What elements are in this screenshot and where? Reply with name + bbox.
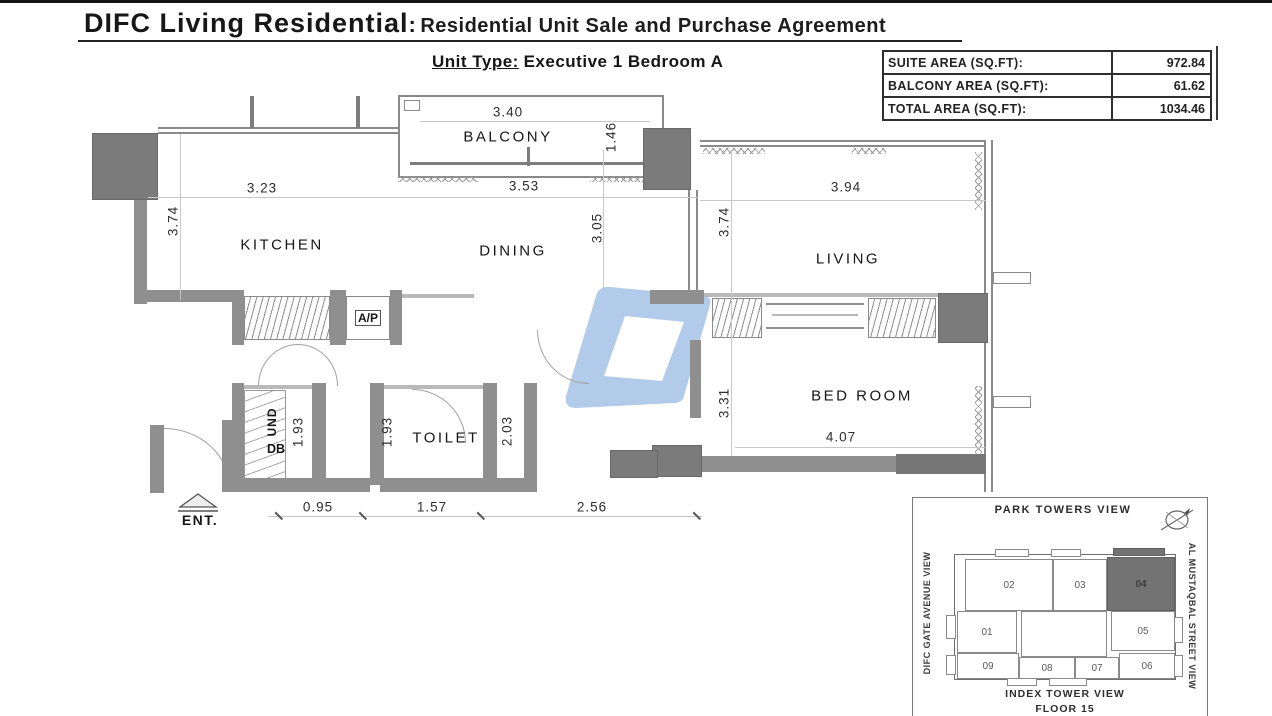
window-hatch-vertical (975, 386, 982, 460)
dim-toilet-width: 2.56 (577, 500, 607, 515)
key-plan-left-label: DIFC GATE AVENUE VIEW (922, 552, 932, 675)
wall-thin (402, 294, 474, 298)
key-plan-unit-06: 06 (1119, 653, 1175, 679)
key-plan-unit-09: 09 (957, 653, 1019, 679)
door-arc (258, 344, 298, 386)
floorplan-document-page: DIFC Living Residential: Residential Uni… (0, 0, 1272, 716)
key-plan-bottom-label-1: INDEX TOWER VIEW (1005, 688, 1125, 700)
key-plan-right-label-text: AL MUSTAQBAL STREET VIEW (1187, 543, 1197, 690)
dim-living-depth: 3.74 (717, 207, 732, 237)
dim-dining-width: 3.53 (509, 179, 539, 194)
dim-store-depth: 1.93 (291, 417, 306, 447)
wall-thin (384, 385, 496, 389)
balcony-glazing-line (410, 162, 650, 165)
balcony-bump (946, 655, 956, 675)
wall-living-top (700, 140, 986, 147)
dimension-line (268, 516, 702, 517)
dim-dining-depth: 3.05 (590, 213, 605, 243)
wall-column-block (92, 133, 158, 200)
right-ledge (993, 272, 1031, 284)
balcony-bump (1051, 549, 1081, 557)
unit-number: 03 (1074, 580, 1085, 591)
wall-column-block (938, 293, 988, 343)
dim-hall-depth: 1.93 (380, 417, 395, 447)
key-plan-unit-01: 01 (957, 611, 1017, 653)
room-label-kitchen: KITCHEN (240, 237, 323, 254)
sliding-rail (772, 314, 858, 316)
key-plan-core (1021, 611, 1107, 657)
wall (330, 290, 346, 345)
room-label-living: LIVING (816, 251, 880, 268)
dimension-line (700, 200, 986, 201)
balcony-bump (995, 549, 1029, 557)
unit-number: 02 (1003, 580, 1014, 591)
dim-bedroom-depth: 3.31 (717, 388, 732, 418)
key-plan-top-label: PARK TOWERS VIEW (995, 504, 1132, 516)
unit-number: 08 (1041, 663, 1052, 674)
dimension-line (735, 447, 985, 448)
wall-column-block (652, 445, 702, 477)
key-plan-unit-05: 05 (1111, 611, 1175, 651)
room-label-toilet: TOILET (412, 430, 479, 447)
room-label-balcony: BALCONY (463, 129, 552, 146)
wall (312, 383, 326, 485)
key-plan-unit-03: 03 (1053, 559, 1107, 611)
hall-door-arc (537, 330, 589, 384)
wall (134, 200, 147, 304)
key-plan-bottom-label-2: FLOOR 15 (1035, 703, 1094, 715)
wall (134, 290, 232, 302)
wall (690, 340, 701, 418)
wall-stub (250, 96, 254, 128)
wall (150, 425, 164, 493)
door-arc (298, 344, 338, 386)
utility-label-db: DB (267, 442, 285, 456)
wall (650, 290, 704, 304)
dim-balcony-depth: 1.46 (604, 122, 619, 152)
window-hatch-vertical (975, 152, 982, 210)
window-sill-hatch (398, 176, 478, 182)
unit-number: 09 (982, 661, 993, 672)
key-plan: PARK TOWERS VIEW 02 03 04 (912, 497, 1208, 716)
utility-label-und: UND (265, 408, 279, 437)
balcony-bump (946, 615, 956, 639)
dim-hall-width: 1.57 (417, 500, 447, 515)
entrance-label: ENT. (182, 512, 218, 528)
wall-column-block (643, 128, 691, 190)
ac-plant-label: A/P (355, 310, 381, 326)
wall (232, 290, 244, 345)
room-label-dining: DINING (479, 243, 547, 260)
dim-toilet-depth: 2.03 (500, 416, 515, 446)
key-plan-unit-08: 08 (1019, 657, 1075, 679)
unit-number: 06 (1141, 661, 1152, 672)
wall (222, 420, 234, 492)
dim-kitchen-width: 3.23 (247, 181, 277, 196)
wall-lower-bottom (232, 478, 370, 492)
key-plan-right-label: AL MUSTAQBAL STREET VIEW (1187, 543, 1197, 690)
balcony-bump (1113, 548, 1165, 556)
room-label-bedroom: BED ROOM (811, 388, 913, 405)
wardrobe-hatch (868, 298, 936, 338)
dim-kitchen-depth: 3.74 (166, 206, 181, 236)
wall (390, 290, 402, 345)
unit-number: 01 (981, 627, 992, 638)
key-plan-unit-02: 02 (965, 559, 1053, 611)
key-plan-building: 02 03 04 01 05 09 08 07 06 (954, 554, 1176, 680)
window-hatch (703, 148, 765, 154)
sliding-opening (766, 303, 864, 329)
wall-dining-living (688, 190, 698, 293)
wall (483, 383, 497, 485)
dim-balcony-width: 3.40 (493, 105, 523, 120)
dim-living-width: 3.94 (831, 180, 861, 195)
balcony-bump (1007, 678, 1037, 686)
wardrobe-hatch (712, 298, 762, 338)
key-plan-unit-07: 07 (1075, 657, 1119, 679)
entrance-arrow-icon (172, 492, 224, 514)
unit-number: 04 (1135, 579, 1146, 590)
wall-lower-bottom (380, 478, 537, 492)
wall-kitchen-top (158, 127, 398, 134)
balcony-corner-box (404, 100, 420, 111)
entrance-door-arc (164, 428, 230, 488)
window-hatch (852, 148, 886, 154)
dim-entry-width: 0.95 (303, 500, 333, 515)
wall-stub (356, 96, 360, 128)
north-compass-icon (1157, 500, 1197, 536)
ac-plant-room: A/P (346, 296, 390, 340)
dimension-line (148, 197, 698, 198)
balcony-bump (1049, 678, 1087, 686)
unit-number: 05 (1137, 626, 1148, 637)
wardrobe-hatch (244, 296, 330, 340)
balcony-door-stub (527, 147, 530, 166)
key-plan-unit-04-highlighted: 04 (1107, 557, 1175, 611)
wall-bedroom-bottom-dark (896, 454, 986, 474)
unit-number: 07 (1091, 663, 1102, 674)
dim-bedroom-width: 4.07 (826, 430, 856, 445)
wall (524, 383, 537, 485)
wall-column-block (610, 450, 658, 478)
right-ledge (993, 396, 1031, 408)
